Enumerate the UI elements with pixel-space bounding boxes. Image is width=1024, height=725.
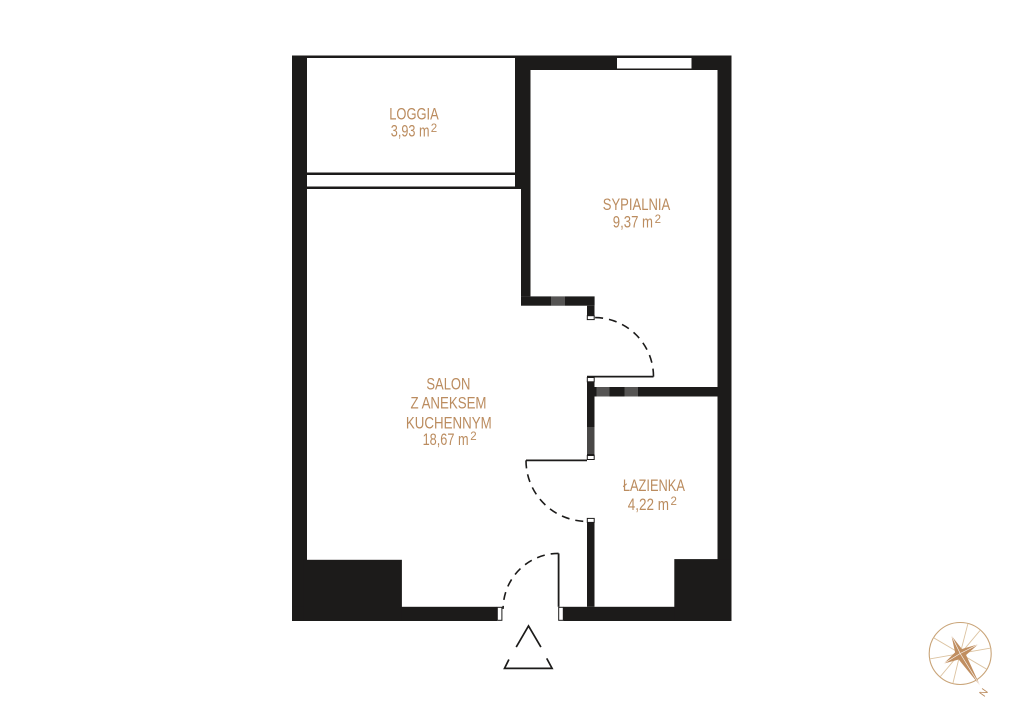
svg-text:2: 2 (431, 123, 437, 135)
svg-text:18,67 m: 18,67 m (423, 431, 469, 449)
svg-text:ŁAZIENKA: ŁAZIENKA (623, 477, 685, 495)
svg-text:Z ANEKSEM: Z ANEKSEM (411, 395, 487, 413)
svg-text:4,22 m: 4,22 m (628, 496, 669, 514)
svg-text:2: 2 (470, 431, 476, 443)
svg-text:2: 2 (671, 496, 677, 508)
svg-text:9,37 m: 9,37 m (613, 214, 653, 232)
svg-text:LOGGIA: LOGGIA (389, 105, 439, 123)
svg-text:KUCHENNYM: KUCHENNYM (406, 414, 492, 432)
svg-text:SALON: SALON (426, 376, 470, 394)
svg-text:SYPIALNIA: SYPIALNIA (603, 196, 671, 214)
svg-text:3,93 m: 3,93 m (391, 123, 430, 141)
svg-text:2: 2 (655, 214, 661, 226)
svg-text:N: N (976, 686, 989, 698)
